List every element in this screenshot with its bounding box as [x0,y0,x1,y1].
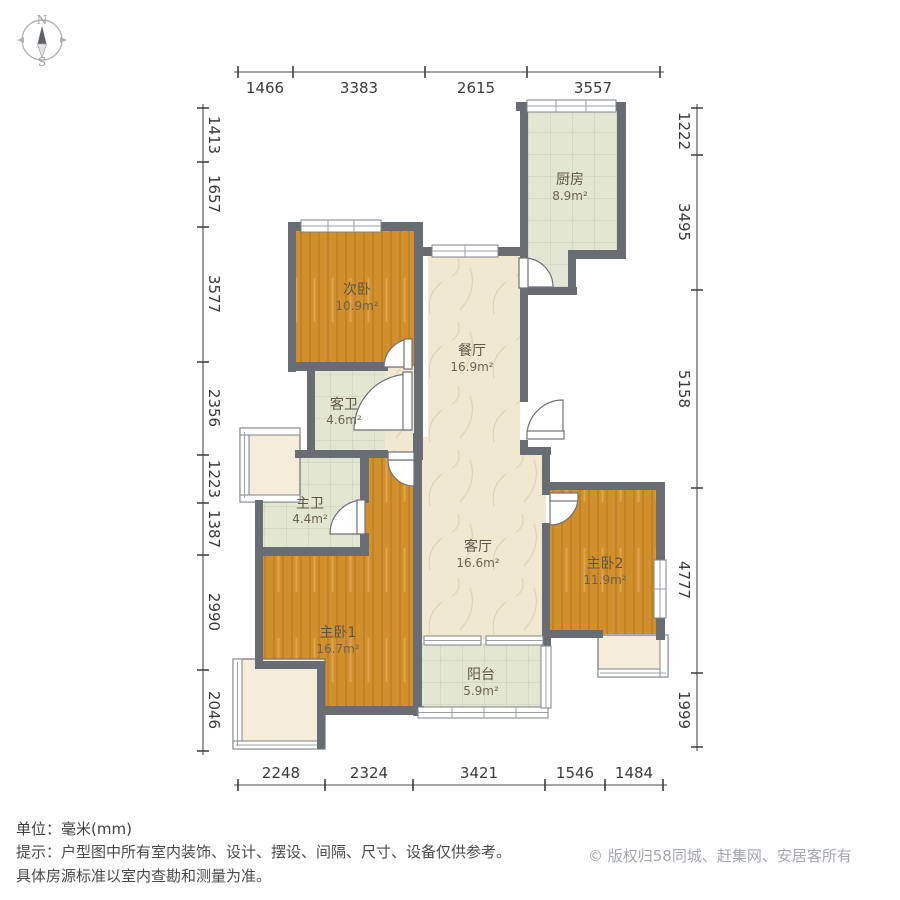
master-bedroom1-bay-window [233,659,325,749]
balcony-side-window [541,646,551,708]
floor-plan: N S [0,0,900,900]
dimension-top: 1466 3383 2615 3557 [234,66,664,97]
dim-bottom-5: 1484 [615,764,653,782]
footer-tip-line2: 具体房源标准以室内查勘和测量为准。 [16,865,511,888]
dim-right-5: 1999 [675,691,693,729]
master-bedroom1-label: 主卧1 [320,625,357,641]
footer-notes: 单位：毫米(mm) 提示：户型图中所有室内装饰、设计、摆设、间隔、尺寸、设备仅供… [16,818,511,888]
living-area: 16.6m² [456,556,499,570]
kitchen-window [527,100,616,112]
dim-left-6: 1387 [205,510,223,548]
dim-left-1: 1413 [205,116,223,154]
dim-left-4: 2356 [205,389,223,427]
dining-window [432,245,498,257]
dimension-right: 1222 3495 5158 4777 1999 [675,104,703,751]
dim-right-4: 4777 [675,561,693,599]
dim-top-1: 1466 [246,79,284,97]
dim-bottom-3: 3421 [460,764,498,782]
dim-right-2: 3495 [675,203,693,241]
kitchen-label: 厨房 [556,172,584,188]
master-bedroom2-label: 主卧2 [587,556,624,572]
dimension-bottom: 2248 2324 3421 1546 1484 [234,764,667,791]
dim-top-3: 2615 [457,79,495,97]
guest-bath-area: 4.6m² [326,413,362,427]
dim-right-3: 5158 [675,370,693,408]
dim-bottom-1: 2248 [262,764,300,782]
dining-label: 餐厅 [458,343,486,359]
dim-bottom-2: 2324 [350,764,388,782]
balcony-label: 阳台 [467,667,495,683]
footer-copyright: © 版权归58同城、赶集网、安居客所有 [588,845,852,866]
compass-needle-north-icon [38,26,47,44]
balcony-area: 5.9m² [463,684,499,698]
dim-bottom-4: 1546 [556,764,594,782]
dining-area: 16.9m² [450,360,493,374]
entry-door [527,400,564,439]
master-bedroom1-area: 16.7m² [316,642,359,656]
dim-left-2: 1657 [205,175,223,213]
dim-left-7: 2990 [205,593,223,631]
living-label: 客厅 [464,538,492,555]
room-floors [259,106,660,711]
kitchen-area: 8.9m² [552,189,588,203]
balcony-window [418,707,548,718]
dim-right-1: 1222 [675,112,693,150]
guest-bath-label: 客卫 [330,396,358,413]
footer-tip-line1: 提示：户型图中所有室内装饰、设计、摆设、间隔、尺寸、设备仅供参考。 [16,841,511,864]
compass: N S [17,13,67,69]
dimension-left: 1413 1657 3577 2356 1223 1387 2990 2046 [197,104,223,755]
compass-west-arrow-icon [17,37,24,43]
second-bedroom-area: 10.9m² [335,299,378,313]
dim-left-3: 3577 [205,275,223,313]
master-bath-area: 4.4m² [292,512,328,526]
dim-left-8: 2046 [205,691,223,729]
master-bedroom2-area: 11.9m² [583,573,626,587]
compass-east-arrow-icon [60,37,67,43]
master-bath-bay-window [240,428,300,502]
master-bath-label: 主卫 [296,496,324,512]
footer-unit-line: 单位：毫米(mm) [16,818,511,841]
dim-top-4: 3557 [574,79,612,97]
compass-north-label: N [37,13,48,27]
master-bedroom2-bay-window [598,635,668,677]
second-bedroom-label: 次卧 [343,282,371,298]
dim-top-2: 3383 [340,79,378,97]
dim-left-5: 1223 [205,460,223,498]
master-bedroom2-window [654,560,666,618]
compass-south-label: S [38,55,46,69]
second-bedroom-window [301,220,381,232]
